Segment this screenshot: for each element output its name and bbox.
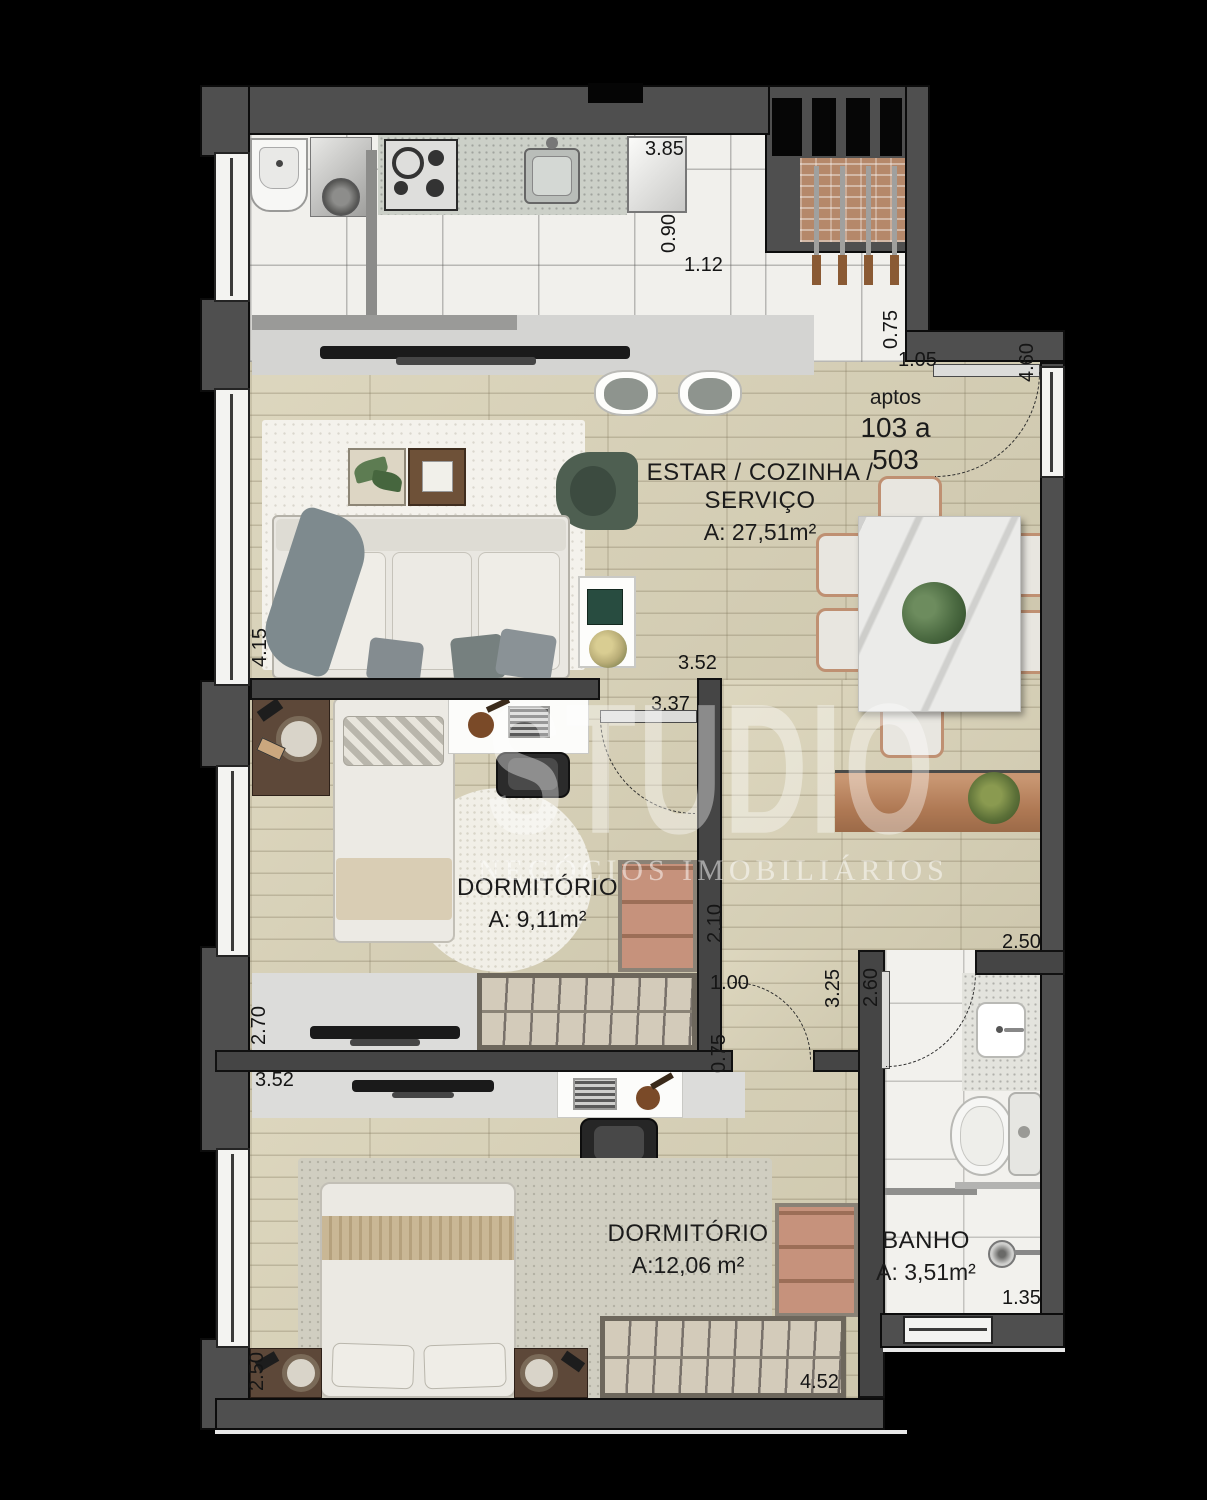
tv-panel [310,1026,460,1039]
dimension-label: 0.90 [659,214,679,253]
dimension-label: 0.75 [709,1034,729,1073]
bedroom1-wardrobe [618,860,697,972]
dimension-label: 4.60 [1017,343,1037,382]
laundry-sink-basin [259,147,299,189]
dimension-label: 3.52 [255,1070,294,1090]
room-label-bath: BANHO A: 3,51m² [866,1227,986,1286]
sideboard [835,770,1057,832]
dimension-label: 4.52 [800,1372,839,1392]
room-name: ESTAR / COZINHA / SERVIÇO [610,459,910,515]
wall-right-top [905,85,930,332]
guitar-icon [468,712,494,738]
shower-arm-icon [1014,1250,1042,1255]
unit-label-line1: aptos [838,386,953,410]
room-area: A: 3,51m² [866,1259,986,1286]
sideboard-plant-icon [968,772,1020,824]
wall-bath-edge [883,1348,1065,1352]
wall-left-pier [200,298,250,392]
shower-divider [955,1182,1040,1189]
bedroom2-wardrobe [775,1203,858,1317]
bed-blanket [336,858,452,920]
dimension-label: 2.10 [705,904,725,943]
desk-chair-cushion [594,1126,644,1160]
drying-rack-line [866,166,871,258]
room-area: A:12,06 m² [598,1252,778,1279]
drying-rack-peg [812,255,821,285]
burner [394,181,408,195]
kitchen-faucet-icon [546,137,558,149]
bed-pillow [331,1343,414,1390]
kitchen-sink-basin [532,156,572,196]
living-window-glass [230,394,233,680]
laptop-icon [573,1078,617,1110]
bedroom2-window-glass [231,1154,234,1342]
dimension-label: 3.37 [651,694,690,714]
wall-bottom [215,1398,885,1430]
wall-top-notch [588,83,643,103]
room-label-living: ESTAR / COZINHA / SERVIÇO A: 27,51m² [610,459,910,546]
tv-panel [352,1080,494,1092]
coffee-table-book [422,461,453,492]
burner [426,179,444,197]
tv-stand [392,1092,454,1098]
wall-bedroom1-top [250,678,600,700]
cooktop [384,139,458,211]
shower-divider [885,1188,977,1195]
room-label-bedroom1: DORMITÓRIO A: 9,11m² [450,874,625,933]
wall-top [215,85,770,135]
dimension-label: 3.85 [645,139,684,159]
room-name: BANHO [866,1227,986,1255]
dimension-label: 3.25 [823,969,843,1008]
room-area: A: 9,11m² [450,906,625,933]
dining-chair [816,608,862,672]
floor-plan-canvas: 3.85 0.90 1.12 0.75 1.05 4.60 4.15 3.52 … [0,0,1207,1500]
wall-bedroom1-right [697,678,722,1072]
entry-window-glass [1050,372,1053,472]
stool-seat [604,378,648,410]
nightstand-tray-icon [282,1354,320,1392]
tv-stand [350,1039,420,1046]
shaft-vent-divider [836,98,846,156]
wall-right [1040,362,1065,1347]
wall-left-pier [200,85,250,157]
laptop-icon [508,706,550,738]
bar-ledge [252,315,517,330]
shower-head-icon [988,1240,1016,1268]
kitchen-partition [366,150,377,315]
wall-left-pier [200,680,250,768]
wall-bottom-edge [215,1430,907,1434]
drying-rack-line [892,166,897,258]
bedroom1-window-glass [231,771,234,951]
bed-knit-band [322,1216,514,1260]
wall-bath-top [975,950,1065,975]
kitchen-window-glass [230,158,233,296]
dimension-label: 2.70 [249,1006,269,1045]
side-table-book [587,589,623,625]
bedroom1-closet [477,973,697,1050]
dimension-label: 1.35 [1002,1288,1041,1308]
burner [428,150,444,166]
drying-rack-line [840,166,845,258]
dimension-label: 2.50 [1002,932,1041,952]
nightstand-tray-icon [520,1354,558,1392]
drying-rack-peg [838,255,847,285]
bed-pillow [423,1343,506,1390]
shaft-vent-divider [802,98,812,156]
dimension-label: 2.50 [247,1352,267,1391]
dimension-label: 2.60 [861,968,881,1007]
stool-seat [688,378,732,410]
toilet-flush-button [1018,1126,1030,1138]
room-name: DORMITÓRIO [598,1220,778,1248]
toilet-seat [960,1106,1004,1166]
bed-pillow [343,716,444,766]
bath-faucet-icon [996,1026,1003,1033]
drying-rack-peg [864,255,873,285]
dimension-label: 3.52 [678,653,717,673]
dining-chair [880,708,944,758]
nightstand-tray-icon [276,716,322,762]
dimension-label: 4.15 [250,628,270,667]
room-label-bedroom2: DORMITÓRIO A:12,06 m² [598,1220,778,1279]
dimension-label: 0.75 [881,310,901,349]
drying-rack-line [814,166,819,258]
drying-rack-peg [890,255,899,285]
room-area: A: 27,51m² [610,519,910,546]
table-plant-icon [902,582,966,644]
wall-left-pier [200,946,250,1152]
desk-chair-cushion [508,758,558,790]
sofa-pillow [495,628,558,682]
dimension-label: 1.00 [710,973,749,993]
dimension-label: 1.05 [898,350,937,370]
burner [392,147,424,179]
room-name: DORMITÓRIO [450,874,625,902]
guitar-icon [636,1086,660,1110]
washing-machine-door [322,178,360,216]
laundry-faucet-icon [276,160,283,167]
shaft-vent-divider [870,98,880,156]
bath-faucet-arm-icon [1004,1028,1024,1032]
bar-shelf-inner [396,357,536,365]
dimension-label: 1.12 [684,255,723,275]
bath-window-glass [909,1328,987,1331]
flower-bouquet-icon [589,630,627,668]
